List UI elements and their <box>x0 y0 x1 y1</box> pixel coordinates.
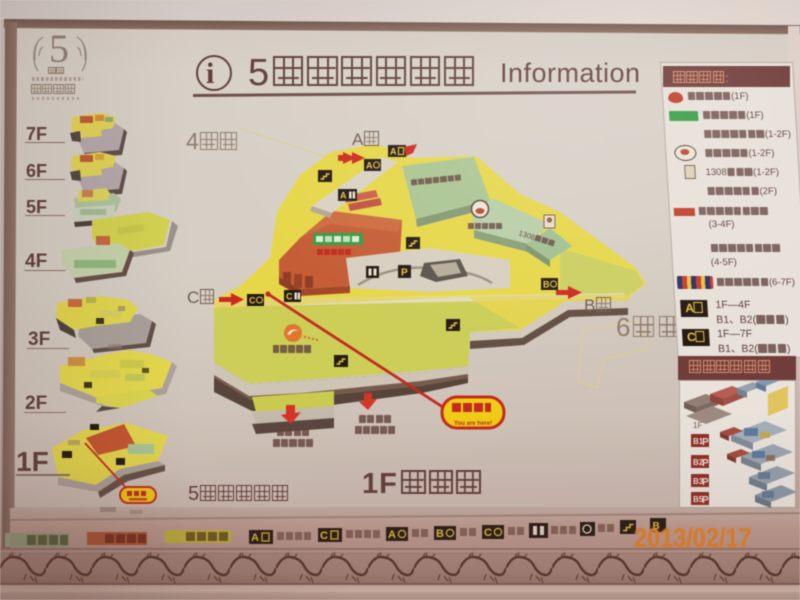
svg-text:P: P <box>702 495 709 506</box>
svg-text:P: P <box>401 268 408 279</box>
svg-text:P: P <box>702 477 709 488</box>
svg-text:A: A <box>251 532 259 544</box>
svg-text:A: A <box>390 147 397 157</box>
svg-text:A: A <box>366 161 373 171</box>
svg-text:1F: 1F <box>693 421 702 430</box>
svg-text:P: P <box>702 437 709 448</box>
svg-text:C: C <box>320 530 328 542</box>
svg-text:C: C <box>249 296 256 306</box>
svg-text:P: P <box>702 458 709 469</box>
svg-text:You are here!: You are here! <box>454 421 492 427</box>
svg-text:C: C <box>286 292 293 302</box>
svg-text:A: A <box>388 529 396 541</box>
svg-text:C: C <box>484 527 492 539</box>
svg-text:B: B <box>436 528 444 540</box>
svg-text:B: B <box>543 280 550 290</box>
svg-text:A: A <box>340 191 347 201</box>
